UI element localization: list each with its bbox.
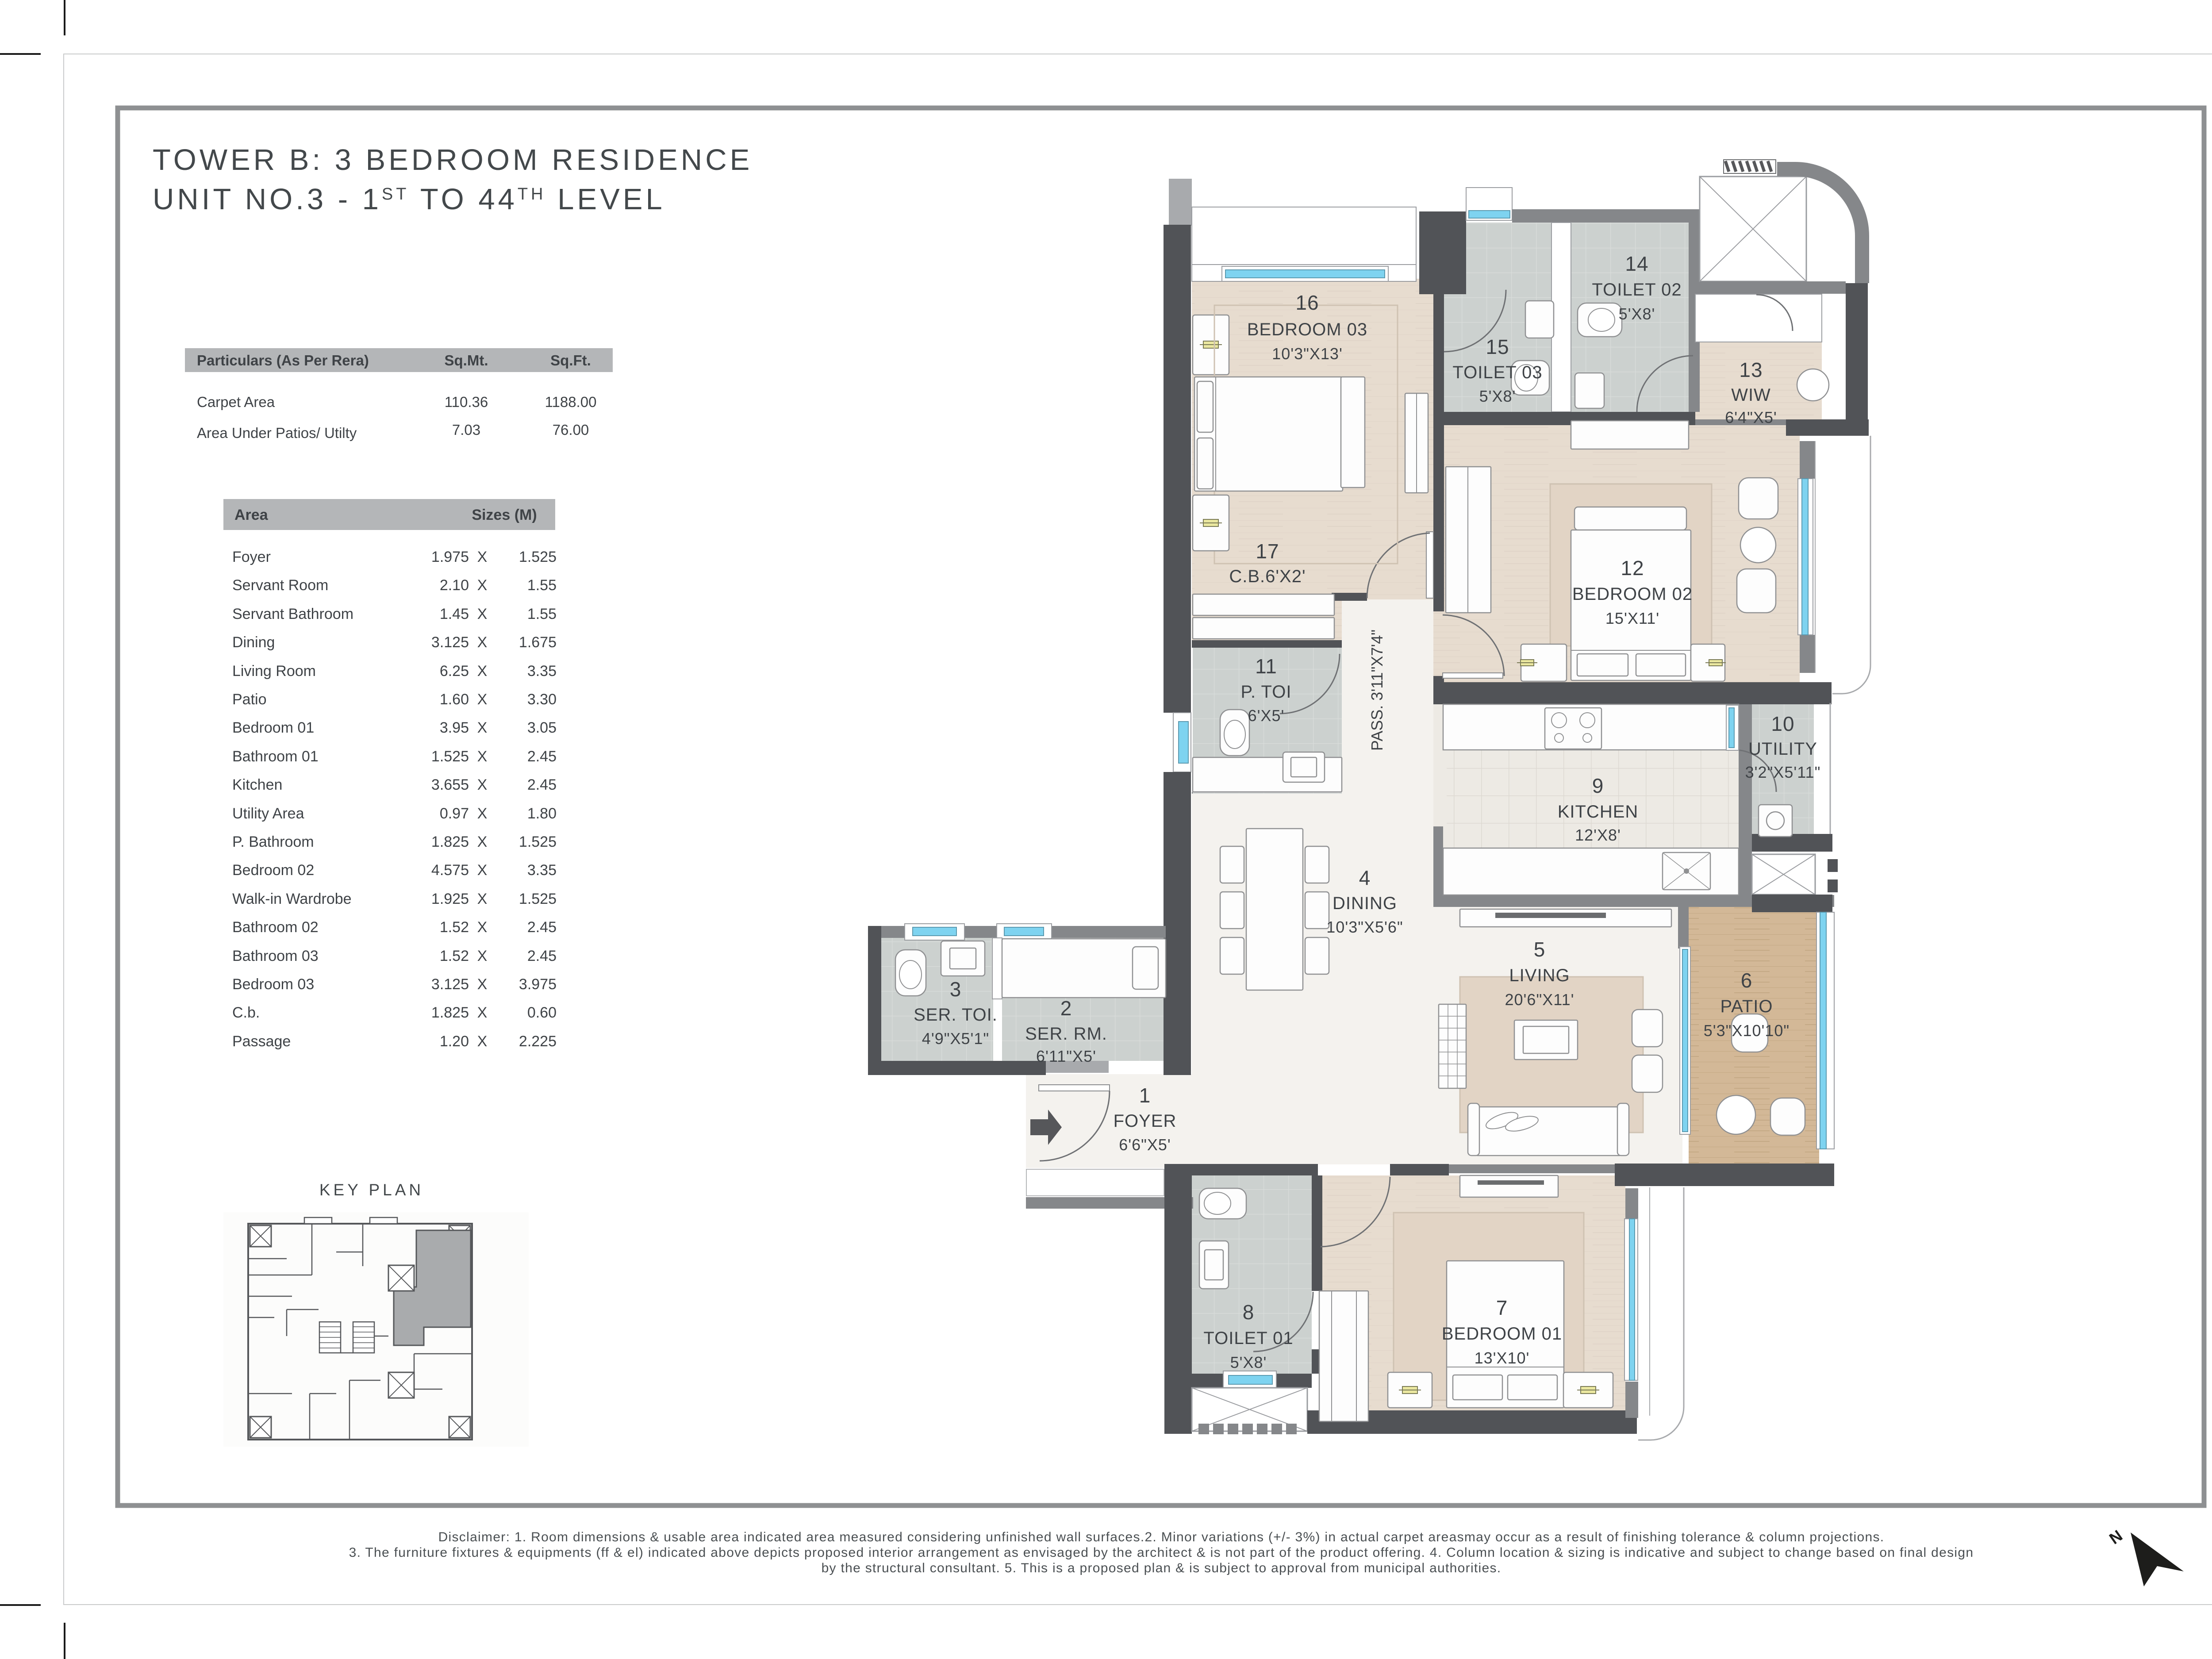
svg-text:WIW: WIW	[1731, 385, 1771, 405]
svg-text:6'6"X5': 6'6"X5'	[1119, 1136, 1171, 1154]
svg-text:1.80: 1.80	[527, 805, 557, 822]
svg-text:Sq.Mt.: Sq.Mt.	[445, 352, 488, 369]
svg-text:X: X	[477, 549, 488, 565]
svg-text:10: 10	[1771, 712, 1794, 735]
svg-text:1.825: 1.825	[431, 1004, 469, 1021]
svg-text:KEY PLAN: KEY PLAN	[319, 1181, 424, 1199]
svg-text:1.525: 1.525	[519, 891, 557, 907]
svg-text:5'X8': 5'X8'	[1619, 305, 1655, 323]
svg-text:FOYER: FOYER	[1114, 1111, 1177, 1131]
svg-text:Servant Room: Servant Room	[232, 577, 328, 594]
svg-text:1.675: 1.675	[519, 634, 557, 651]
svg-text:X: X	[477, 1033, 488, 1050]
svg-text:Passage: Passage	[232, 1033, 291, 1050]
svg-text:3: 3	[950, 978, 962, 1001]
svg-text:7: 7	[1496, 1296, 1508, 1319]
svg-text:0.60: 0.60	[527, 1004, 557, 1021]
svg-text:1.925: 1.925	[431, 891, 469, 907]
svg-text:3.95: 3.95	[440, 719, 469, 736]
svg-text:TOWER B: 3 BEDROOM RESIDENCE: TOWER B: 3 BEDROOM RESIDENCE	[153, 143, 753, 177]
svg-text:Sq.Ft.: Sq.Ft.	[550, 352, 591, 369]
svg-text:X: X	[477, 919, 488, 936]
svg-text:SER. TOI.: SER. TOI.	[914, 1005, 998, 1025]
svg-text:3.125: 3.125	[431, 976, 469, 993]
svg-text:X: X	[477, 691, 488, 708]
svg-text:X: X	[477, 833, 488, 850]
svg-text:6: 6	[1741, 969, 1753, 992]
svg-text:3.975: 3.975	[519, 976, 557, 993]
svg-text:Servant Bathroom: Servant Bathroom	[232, 606, 353, 622]
svg-text:Area Under Patios/ Utilty: Area Under Patios/ Utilty	[197, 425, 357, 441]
svg-text:2.225: 2.225	[519, 1033, 557, 1050]
svg-text:Walk-in Wardrobe: Walk-in Wardrobe	[232, 891, 352, 907]
svg-text:X: X	[477, 1004, 488, 1021]
svg-text:1.525: 1.525	[519, 833, 557, 850]
svg-text:DINING: DINING	[1333, 894, 1397, 913]
svg-text:6'4"X5': 6'4"X5'	[1725, 408, 1777, 426]
svg-text:6.25: 6.25	[440, 663, 469, 680]
svg-text:1.55: 1.55	[527, 577, 557, 594]
svg-text:4: 4	[1359, 866, 1371, 889]
svg-text:10'3"X5'6": 10'3"X5'6"	[1326, 918, 1403, 936]
svg-text:Bathroom 01: Bathroom 01	[232, 748, 319, 765]
svg-text:Dining: Dining	[232, 634, 275, 651]
svg-text:5: 5	[1534, 938, 1546, 961]
svg-text:3.125: 3.125	[431, 634, 469, 651]
svg-text:1.825: 1.825	[431, 833, 469, 850]
svg-text:Living Room: Living Room	[232, 663, 316, 680]
svg-text:Carpet Area: Carpet Area	[197, 394, 275, 410]
svg-text:15: 15	[1486, 335, 1509, 358]
svg-text:2.45: 2.45	[527, 776, 557, 793]
svg-text:PATIO: PATIO	[1720, 997, 1773, 1016]
svg-text:8: 8	[1243, 1301, 1255, 1324]
svg-text:X: X	[477, 948, 488, 964]
svg-text:5'3"X10'10": 5'3"X10'10"	[1704, 1022, 1790, 1040]
svg-text:Bedroom 01: Bedroom 01	[232, 719, 314, 736]
svg-text:76.00: 76.00	[553, 422, 589, 438]
svg-text:C.B.6'X2': C.B.6'X2'	[1229, 567, 1306, 586]
svg-text:Sizes (M): Sizes (M)	[472, 507, 537, 523]
svg-text:17: 17	[1256, 540, 1279, 563]
svg-text:5'X8': 5'X8'	[1230, 1353, 1267, 1371]
svg-text:7.03: 7.03	[452, 422, 480, 438]
svg-text:PASS. 3'11"X7'4": PASS. 3'11"X7'4"	[1368, 630, 1386, 751]
svg-text:Bedroom 03: Bedroom 03	[232, 976, 314, 993]
svg-text:9: 9	[1592, 774, 1604, 797]
svg-text:TOILET 01: TOILET 01	[1203, 1329, 1293, 1348]
svg-text:Bathroom 03: Bathroom 03	[232, 948, 319, 964]
svg-text:X: X	[477, 577, 488, 594]
svg-text:6'X5': 6'X5'	[1248, 707, 1285, 725]
svg-text:by the structural consultant.: by the structural consultant. 5. This is…	[822, 1561, 1502, 1575]
svg-text:2.45: 2.45	[527, 919, 557, 936]
svg-text:Foyer: Foyer	[232, 549, 271, 565]
svg-text:X: X	[477, 663, 488, 680]
svg-text:14: 14	[1625, 252, 1648, 275]
svg-text:X: X	[477, 805, 488, 822]
svg-text:3.35: 3.35	[527, 862, 557, 879]
svg-text:4.575: 4.575	[431, 862, 469, 879]
svg-text:C.b.: C.b.	[232, 1004, 260, 1021]
svg-text:X: X	[477, 719, 488, 736]
svg-text:1.525: 1.525	[519, 549, 557, 565]
svg-text:Bathroom 02: Bathroom 02	[232, 919, 319, 936]
svg-text:12'X8': 12'X8'	[1575, 826, 1621, 844]
svg-text:0.97: 0.97	[440, 805, 469, 822]
svg-text:2.45: 2.45	[527, 748, 557, 765]
svg-text:110.36: 110.36	[445, 394, 488, 410]
svg-text:Area: Area	[234, 507, 269, 523]
svg-text:1.55: 1.55	[527, 606, 557, 622]
svg-text:11: 11	[1255, 655, 1277, 678]
svg-text:SER. RM.: SER. RM.	[1025, 1024, 1107, 1044]
svg-text:X: X	[477, 862, 488, 879]
svg-text:3'2"X5'11": 3'2"X5'11"	[1745, 763, 1821, 781]
svg-text:2.45: 2.45	[527, 948, 557, 964]
svg-text:TOILET 03: TOILET 03	[1452, 363, 1542, 382]
svg-text:X: X	[477, 606, 488, 622]
svg-text:20'6"X11': 20'6"X11'	[1505, 991, 1575, 1009]
svg-text:1188.00: 1188.00	[545, 394, 597, 410]
svg-text:KITCHEN: KITCHEN	[1558, 802, 1639, 822]
svg-text:TOILET 02: TOILET 02	[1592, 280, 1682, 300]
svg-text:5'X8': 5'X8'	[1479, 387, 1516, 405]
svg-text:Particulars (As Per Rera): Particulars (As Per Rera)	[197, 352, 369, 369]
svg-text:1.20: 1.20	[440, 1033, 469, 1050]
svg-text:1: 1	[1139, 1084, 1151, 1107]
svg-text:LIVING: LIVING	[1509, 966, 1570, 985]
svg-text:1.45: 1.45	[440, 606, 469, 622]
svg-text:Kitchen: Kitchen	[232, 776, 282, 793]
svg-text:P. TOI: P. TOI	[1241, 682, 1292, 702]
svg-text:X: X	[477, 748, 488, 765]
svg-text:3.30: 3.30	[527, 691, 557, 708]
svg-text:1.52: 1.52	[440, 919, 469, 936]
svg-text:Patio: Patio	[232, 691, 267, 708]
svg-text:Bedroom 02: Bedroom 02	[232, 862, 314, 879]
svg-text:X: X	[477, 891, 488, 907]
svg-text:2.10: 2.10	[440, 577, 469, 594]
svg-text:13'X10': 13'X10'	[1475, 1349, 1530, 1367]
svg-text:3.35: 3.35	[527, 663, 557, 680]
svg-text:3.05: 3.05	[527, 719, 557, 736]
svg-text:BEDROOM 02: BEDROOM 02	[1572, 584, 1693, 604]
svg-text:X: X	[477, 976, 488, 993]
svg-text:12: 12	[1621, 557, 1644, 580]
svg-text:Utility Area: Utility Area	[232, 805, 304, 822]
svg-text:X: X	[477, 634, 488, 651]
svg-text:UTILITY: UTILITY	[1748, 739, 1817, 759]
svg-text:6'11"X5': 6'11"X5'	[1036, 1047, 1096, 1065]
svg-text:1.525: 1.525	[431, 748, 469, 765]
svg-text:1.975: 1.975	[431, 549, 469, 565]
svg-text:3. The furniture fixtures & eq: 3. The furniture fixtures & equipments (…	[349, 1545, 1974, 1560]
svg-text:BEDROOM 01: BEDROOM 01	[1442, 1324, 1562, 1344]
svg-text:X: X	[477, 776, 488, 793]
svg-text:16: 16	[1295, 291, 1319, 314]
svg-text:10'3"X13': 10'3"X13'	[1272, 345, 1343, 363]
svg-text:13: 13	[1739, 358, 1763, 381]
svg-text:P. Bathroom: P. Bathroom	[232, 833, 314, 850]
svg-text:Disclaimer: 1. Room dimensions: Disclaimer: 1. Room dimensions & usable …	[438, 1530, 1885, 1544]
svg-text:BEDROOM 03: BEDROOM 03	[1247, 320, 1367, 339]
svg-text:4'9"X5'1": 4'9"X5'1"	[922, 1029, 989, 1048]
svg-text:1.52: 1.52	[440, 948, 469, 964]
svg-text:1.60: 1.60	[440, 691, 469, 708]
svg-text:2: 2	[1060, 997, 1072, 1020]
svg-text:3.655: 3.655	[431, 776, 469, 793]
svg-text:15'X11': 15'X11'	[1605, 609, 1659, 627]
